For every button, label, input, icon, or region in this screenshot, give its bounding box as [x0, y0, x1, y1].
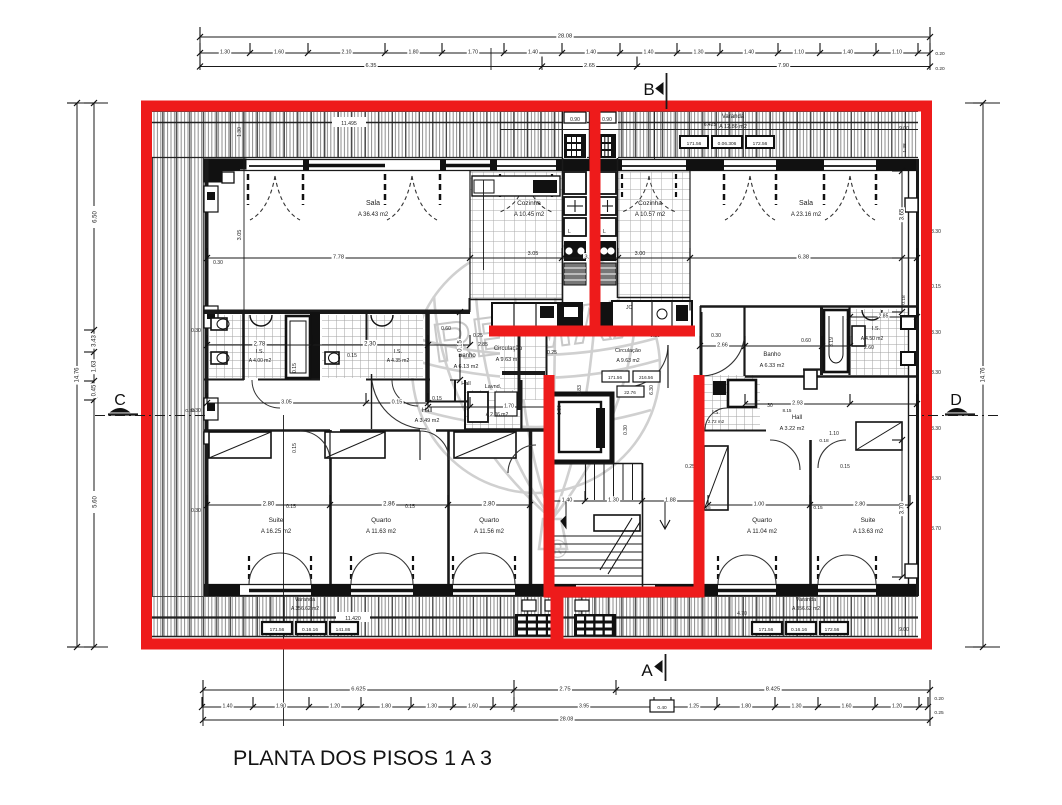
svg-text:1.60: 1.60	[841, 703, 851, 709]
svg-text:1.40: 1.40	[528, 49, 538, 55]
svg-text:0.18: 0.18	[901, 295, 907, 305]
svg-text:1.10: 1.10	[892, 49, 902, 55]
svg-text:Varanda: Varanda	[295, 597, 316, 603]
svg-text:Quarto: Quarto	[371, 517, 391, 524]
svg-text:Varanda: Varanda	[722, 114, 745, 120]
svg-text:8.15: 8.15	[783, 408, 792, 413]
svg-text:6.50: 6.50	[93, 211, 99, 223]
svg-text:216.56: 216.56	[639, 375, 653, 380]
svg-text:0.30: 0.30	[191, 508, 201, 514]
svg-text:6.625: 6.625	[351, 686, 366, 692]
svg-text:Sala: Sala	[799, 200, 813, 207]
svg-text:0.15: 0.15	[840, 464, 850, 470]
svg-text:0.40: 0.40	[657, 705, 667, 711]
svg-text:141.86: 141.86	[336, 627, 351, 633]
svg-text:0.15: 0.15	[432, 396, 442, 402]
svg-text:0.20: 0.20	[934, 696, 944, 702]
svg-text:0.15: 0.15	[458, 340, 464, 352]
svg-text:A 4.50 m2: A 4.50 m2	[861, 336, 884, 342]
svg-text:Hall: Hall	[422, 408, 432, 414]
svg-text:1.40: 1.40	[562, 497, 573, 503]
svg-text:0.18: 0.18	[819, 438, 829, 444]
svg-text:1.30: 1.30	[427, 703, 437, 709]
svg-text:2.72 m2: 2.72 m2	[708, 419, 725, 424]
svg-text:9.00: 9.00	[899, 627, 909, 633]
svg-text:1.70: 1.70	[468, 49, 478, 55]
svg-text:0.25: 0.25	[934, 710, 944, 716]
svg-text:0.25: 0.25	[473, 333, 483, 339]
svg-text:1.20: 1.20	[330, 703, 340, 709]
svg-text:0.15: 0.15	[292, 443, 298, 453]
svg-text:14.76: 14.76	[981, 367, 987, 383]
svg-text:2.85: 2.85	[879, 313, 889, 319]
svg-text:3.30: 3.30	[931, 330, 941, 336]
svg-text:0.16.16: 0.16.16	[302, 627, 318, 633]
svg-text:0.90: 0.90	[602, 117, 612, 123]
svg-text:2.66: 2.66	[717, 342, 728, 348]
svg-text:1.25: 1.25	[689, 703, 699, 709]
svg-text:2.10: 2.10	[341, 49, 351, 55]
svg-text:0.15: 0.15	[405, 504, 415, 510]
svg-text:2.30: 2.30	[364, 341, 376, 347]
svg-text:1.80: 1.80	[557, 405, 563, 415]
svg-text:1.30: 1.30	[693, 49, 703, 55]
svg-text:Cozinha: Cozinha	[517, 200, 541, 207]
svg-text:C: C	[114, 392, 126, 409]
svg-text:28.08: 28.08	[558, 33, 573, 39]
svg-text:2.80: 2.80	[263, 501, 275, 507]
svg-text:0.25: 0.25	[547, 350, 557, 356]
svg-text:1.60: 1.60	[468, 703, 478, 709]
svg-text:A 6.13 m2: A 6.13 m2	[454, 364, 479, 370]
svg-text:1.40: 1.40	[222, 703, 232, 709]
svg-text:Banho: Banho	[458, 353, 476, 359]
svg-text:A 13.63 m2: A 13.63 m2	[853, 529, 884, 535]
svg-text:B: B	[643, 80, 654, 99]
svg-text:3.30: 3.30	[931, 426, 941, 432]
svg-text:A 10.45 m2: A 10.45 m2	[514, 212, 545, 218]
svg-text:6.30: 6.30	[649, 385, 655, 395]
svg-text:0.90: 0.90	[570, 117, 580, 123]
svg-text:2.75: 2.75	[559, 686, 570, 692]
svg-text:30: 30	[767, 403, 773, 409]
svg-text:3.65: 3.65	[900, 208, 906, 220]
svg-text:1.10: 1.10	[829, 431, 839, 437]
svg-text:A 36.43 m2: A 36.43 m2	[358, 212, 389, 218]
svg-text:0.30: 0.30	[711, 333, 721, 339]
svg-text:A 3.49 m2: A 3.49 m2	[415, 418, 440, 424]
svg-text:I.S.: I.S.	[256, 349, 265, 355]
svg-text:0.16.16: 0.16.16	[791, 627, 807, 633]
svg-text:A 16.25 m2: A 16.25 m2	[261, 529, 292, 535]
svg-text:1.30: 1.30	[791, 703, 801, 709]
svg-text:I.S.: I.S.	[394, 349, 403, 355]
svg-text:3.30: 3.30	[931, 370, 941, 376]
svg-text:6.425: 6.425	[704, 122, 717, 128]
svg-text:3.30: 3.30	[931, 229, 941, 235]
svg-text:5.60: 5.60	[93, 496, 99, 508]
svg-text:1.63: 1.63	[92, 360, 98, 372]
svg-text:1.40: 1.40	[643, 49, 653, 55]
svg-text:Lavnd.: Lavnd.	[485, 384, 502, 390]
svg-text:A 11.04 m2: A 11.04 m2	[747, 529, 778, 535]
svg-text:1.20: 1.20	[892, 703, 902, 709]
svg-text:11.495: 11.495	[341, 121, 357, 127]
svg-text:0.15: 0.15	[813, 505, 823, 511]
svg-text:L: L	[603, 229, 606, 235]
svg-text:6.38: 6.38	[798, 254, 809, 260]
svg-text:2.85: 2.85	[478, 342, 488, 348]
svg-text:6.35: 6.35	[366, 63, 377, 69]
svg-text:3.05: 3.05	[237, 230, 243, 241]
svg-text:172.56: 172.56	[825, 627, 840, 633]
svg-text:D: D	[950, 392, 962, 409]
svg-text:Quarto: Quarto	[479, 517, 499, 524]
svg-text:Circulação: Circulação	[494, 346, 523, 352]
svg-text:0.60: 0.60	[441, 326, 451, 332]
svg-text:A 6.33 m2: A 6.33 m2	[760, 363, 785, 369]
svg-text:0.15: 0.15	[931, 284, 941, 290]
svg-text:0.15: 0.15	[286, 504, 296, 510]
svg-text:3.00: 3.00	[635, 251, 646, 257]
svg-text:3.43: 3.43	[92, 335, 98, 347]
svg-text:0.30: 0.30	[213, 260, 223, 266]
svg-text:1.40: 1.40	[843, 49, 853, 55]
svg-text:A 23.16 m2: A 23.16 m2	[791, 212, 822, 218]
svg-text:Hall: Hall	[792, 415, 802, 421]
svg-text:0.30: 0.30	[623, 425, 629, 435]
svg-text:1.80: 1.80	[741, 703, 751, 709]
svg-text:2.86: 2.86	[383, 501, 395, 507]
svg-text:171.56: 171.56	[608, 375, 622, 380]
svg-text:1.83: 1.83	[577, 385, 583, 395]
svg-text:A 10.57 m2: A 10.57 m2	[635, 212, 666, 218]
svg-text:2.78: 2.78	[254, 341, 266, 347]
svg-text:0.30: 0.30	[191, 328, 201, 334]
svg-text:9.00: 9.00	[899, 126, 909, 132]
svg-text:1.80: 1.80	[408, 49, 418, 55]
svg-text:3.70: 3.70	[931, 526, 941, 532]
svg-text:A 356.62 m2: A 356.62 m2	[792, 606, 820, 612]
svg-text:Cozinha: Cozinha	[638, 200, 662, 207]
svg-text:A 3.22 m2: A 3.22 m2	[780, 426, 805, 432]
svg-text:I.S.: I.S.	[872, 326, 881, 332]
svg-text:0.20: 0.20	[935, 51, 945, 57]
svg-text:1.00: 1.00	[754, 501, 765, 507]
svg-text:3.19: 3.19	[829, 337, 835, 347]
svg-text:Hall: Hall	[461, 381, 470, 387]
svg-text:1.88: 1.88	[665, 497, 676, 503]
svg-text:JC: JC	[626, 305, 633, 311]
svg-text:3.05: 3.05	[281, 399, 292, 405]
svg-text:Circulação: Circulação	[615, 348, 641, 354]
svg-text:28.08: 28.08	[560, 716, 574, 722]
svg-text:4.70: 4.70	[737, 611, 747, 617]
svg-text:1.30: 1.30	[608, 497, 619, 503]
svg-text:1.40: 1.40	[744, 49, 754, 55]
svg-text:1.38: 1.38	[902, 143, 908, 153]
svg-text:2.80: 2.80	[483, 501, 495, 507]
svg-text:1.30: 1.30	[237, 127, 243, 137]
svg-text:Suite: Suite	[269, 517, 284, 524]
svg-text:A 2.06 m2: A 2.06 m2	[486, 412, 509, 418]
svg-text:A 11.56 m2: A 11.56 m2	[474, 529, 505, 535]
svg-text:Quarto: Quarto	[752, 517, 772, 524]
svg-text:Suite: Suite	[861, 517, 876, 524]
svg-text:7.78: 7.78	[333, 254, 344, 260]
svg-text:1.30: 1.30	[220, 49, 230, 55]
svg-text:A 11.63 m2: A 11.63 m2	[366, 529, 397, 535]
svg-text:Sala: Sala	[366, 200, 380, 207]
svg-text:1.80: 1.80	[381, 703, 391, 709]
svg-text:171.56: 171.56	[270, 627, 285, 633]
svg-text:A 9.63 m2: A 9.63 m2	[496, 357, 521, 363]
svg-text:172.56: 172.56	[753, 141, 768, 147]
svg-text:1.40: 1.40	[586, 49, 596, 55]
svg-text:0.15: 0.15	[392, 399, 403, 405]
svg-text:0.06.306: 0.06.306	[718, 141, 737, 147]
svg-text:A 4.35 m2: A 4.35 m2	[387, 358, 410, 364]
svg-text:8.425: 8.425	[766, 686, 781, 692]
svg-text:171.56: 171.56	[687, 141, 702, 147]
svg-text:2.60: 2.60	[864, 345, 874, 351]
svg-text:Varanda: Varanda	[796, 597, 817, 603]
svg-text:1.70: 1.70	[504, 403, 514, 409]
svg-text:14.76: 14.76	[75, 367, 81, 383]
svg-text:3.95: 3.95	[579, 703, 589, 709]
svg-text:A 356.62 m2: A 356.62 m2	[291, 606, 319, 612]
svg-text:1.60: 1.60	[274, 49, 284, 55]
svg-text:2.93: 2.93	[792, 400, 803, 406]
svg-text:A 4.00 m2: A 4.00 m2	[249, 358, 272, 364]
svg-text:1.90: 1.90	[276, 703, 286, 709]
svg-text:0.15: 0.15	[292, 363, 298, 373]
svg-text:0.45: 0.45	[92, 384, 98, 396]
svg-text:A 9.63 m2: A 9.63 m2	[616, 358, 639, 364]
svg-text:2.65: 2.65	[584, 63, 595, 69]
svg-text:22.76: 22.76	[624, 390, 636, 395]
svg-text:0.60: 0.60	[801, 338, 811, 344]
svg-text:3.70: 3.70	[900, 502, 906, 514]
svg-text:1.10: 1.10	[794, 49, 804, 55]
svg-text:0.30: 0.30	[185, 408, 195, 414]
svg-text:3.05: 3.05	[528, 251, 539, 257]
svg-text:0.20: 0.20	[935, 66, 945, 72]
svg-text:A: A	[641, 661, 653, 680]
svg-text:L: L	[568, 229, 571, 235]
svg-text:2.80: 2.80	[855, 501, 866, 507]
svg-text:0.15: 0.15	[347, 353, 357, 359]
svg-text:7.90: 7.90	[778, 63, 789, 69]
svg-text:Banho: Banho	[763, 352, 781, 358]
svg-text:171.56: 171.56	[759, 627, 774, 633]
svg-text:PLANTA DOS PISOS 1 A 3: PLANTA DOS PISOS 1 A 3	[233, 746, 492, 770]
svg-text:3.30: 3.30	[931, 476, 941, 482]
